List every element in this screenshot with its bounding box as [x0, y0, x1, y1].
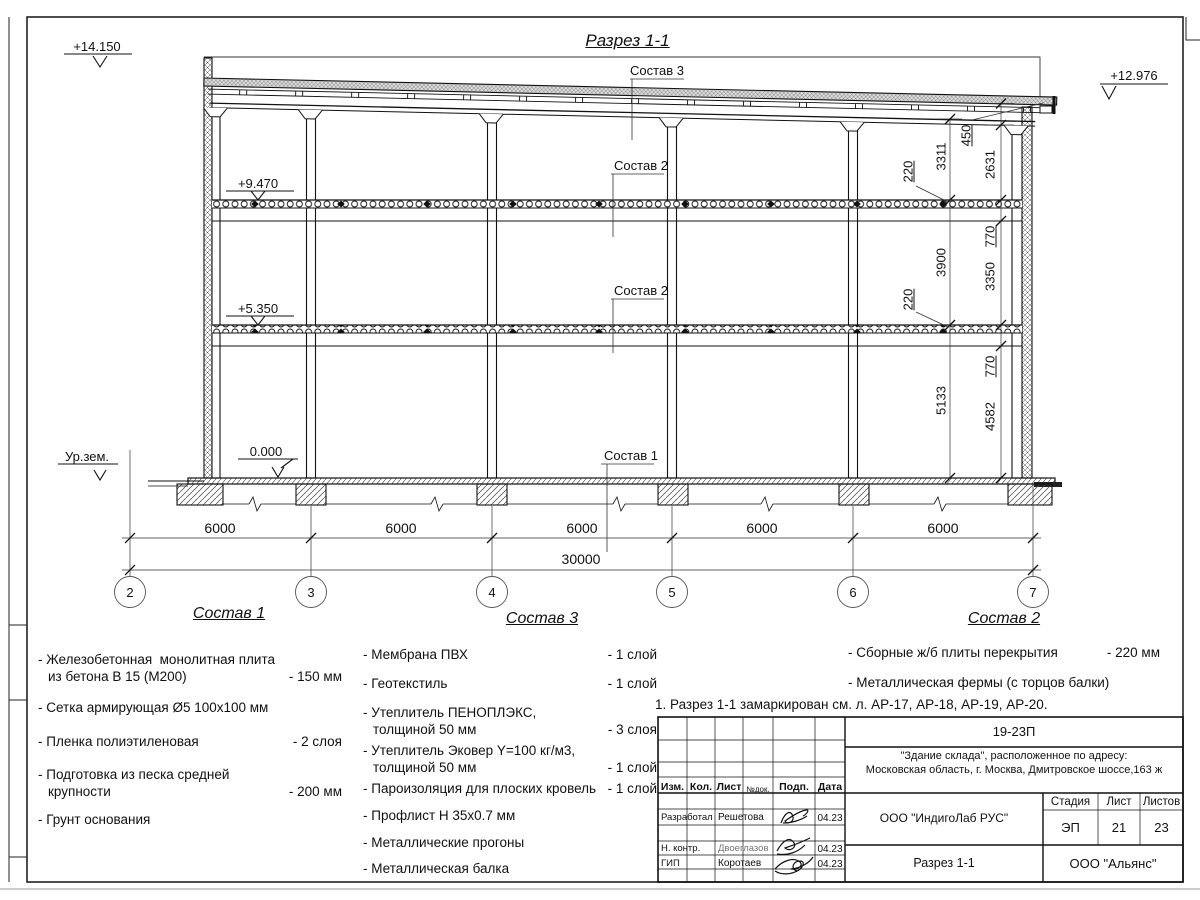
- callout-sostav1-slab: Состав 1: [600, 448, 662, 463]
- dim-220-lower: 220: [901, 270, 916, 330]
- titleblock-header-podp: Подп.: [773, 781, 815, 794]
- titleblock-object-line1: "Здание склада", расположенное по адресу…: [845, 750, 1183, 763]
- legend2-value: - 220 мм: [1095, 645, 1160, 662]
- titleblock-header-kol: Кол.: [687, 781, 715, 794]
- legend1-value: - 2 слоя: [280, 734, 342, 751]
- grid-bubbles: [115, 577, 1049, 608]
- dim-4582: 4582: [983, 387, 998, 447]
- signature-korotaev: [775, 857, 813, 874]
- callout-sostav3-roof: Состав 3: [626, 63, 688, 78]
- legend3-item: - Профлист Н 35х0.7 мм: [363, 808, 603, 825]
- titleblock-date: 04.23: [815, 843, 845, 856]
- legend1-heading: Состав 1: [184, 605, 274, 623]
- titleblock-role: Н. контр.: [661, 843, 716, 855]
- dim-bay-4: 6000: [727, 521, 797, 536]
- elevation-parapet-left: +14.150: [62, 39, 132, 54]
- grid-bubble-2: 2: [115, 585, 145, 600]
- left-wall: [204, 58, 212, 478]
- dim-2631: 2631: [983, 135, 998, 195]
- titleblock-role: Разработал: [661, 812, 716, 824]
- dim-bay-3: 6000: [547, 521, 617, 536]
- dim-450: 450: [959, 106, 974, 166]
- titleblock-sheet-value: 21: [1098, 820, 1140, 835]
- dim-3900: 3900: [934, 233, 949, 293]
- legend3-value: - 1 слой: [597, 676, 657, 693]
- grid-bubble-5: 5: [657, 585, 687, 600]
- signatures: [775, 810, 813, 874]
- dim-total: 30000: [541, 552, 621, 567]
- signature-dvoeglazov: [777, 838, 810, 855]
- dim-3350: 3350: [983, 247, 998, 307]
- dim-bay-2: 6000: [366, 521, 436, 536]
- legend2-item: - Сборные ж/б плиты перекрытия: [848, 645, 1088, 662]
- grid-bubble-7: 7: [1018, 585, 1048, 600]
- titleblock-header-list: Лист: [715, 781, 743, 794]
- legend2-item: - Металлическая фермы (с торцов балки): [848, 675, 1128, 692]
- dim-220-upper: 220: [901, 142, 916, 202]
- titleblock-drawing-name: Разрез 1-1: [845, 857, 1043, 870]
- grid-bubble-6: 6: [838, 585, 868, 600]
- legend3-heading: Состав 3: [497, 610, 587, 628]
- legend1-value: - 200 мм: [280, 784, 342, 801]
- legend3-item: - Металлическая балка: [363, 861, 603, 878]
- legend1-item-line2: крупности: [48, 784, 298, 801]
- legend3-item: - Мембрана ПВХ: [363, 647, 603, 664]
- titleblock-stage-header: Стадия: [1043, 796, 1098, 809]
- legend3-value: - 3 слоя: [597, 722, 657, 739]
- titleblock-header-ndoc: №док.: [743, 783, 773, 796]
- titleblock-name: Коротаев: [718, 858, 773, 870]
- titleblock-name: Двоеглазов: [718, 843, 773, 855]
- titleblock-sheets-header: Листов: [1140, 796, 1183, 809]
- legend3-item: - Утеплитель Эковер Y=100 кг/м3,: [363, 743, 603, 760]
- legend3-value: - 1 слой: [597, 781, 657, 798]
- callout-sostav2-upper: Состав 2: [610, 158, 672, 173]
- legend3-item-line2: толщиной 50 мм: [373, 722, 613, 739]
- dim-5133: 5133: [934, 371, 949, 431]
- ground-break-line: [223, 497, 1008, 511]
- roof-structure: [203, 78, 1057, 136]
- legend1-item-line2: из бетона В 15 (М200): [48, 669, 298, 686]
- ground-slab: [148, 478, 1062, 487]
- titleblock-sheets-value: 23: [1140, 820, 1183, 835]
- elevation-floor-upper: +9.470: [226, 176, 290, 191]
- legend3-item: - Утеплитель ПЕНОПЛЭКС,: [363, 705, 603, 722]
- legend3-item: - Пароизоляция для плоских кровель: [363, 781, 603, 798]
- titleblock-sheet-header: Лист: [1098, 796, 1140, 809]
- titleblock-project-code: 19-23П: [845, 724, 1183, 739]
- right-wall: [1022, 107, 1032, 478]
- signature-reshetova: [781, 810, 808, 823]
- titleblock-object-line2: Московская область, г. Москва, Дмитровск…: [845, 764, 1183, 777]
- elevation-ground-floor: 0.000: [238, 444, 294, 459]
- titleblock-role: ГИП: [661, 858, 716, 870]
- titleblock-date: 04.23: [815, 812, 845, 825]
- legend1-item: - Железобетонная монолитная плита: [38, 652, 288, 669]
- elevation-roof-right: +12.976: [1098, 68, 1170, 83]
- ground-level-label: Ур.зем.: [56, 449, 118, 464]
- drawing-note: 1. Разрез 1-1 замаркирован см. л. АР-17,…: [655, 697, 1095, 714]
- titleblock-stage-value: ЭП: [1043, 820, 1098, 835]
- legend1-item: - Сетка армирующая Ø5 100х100 мм: [38, 700, 318, 717]
- titleblock-date: 04.23: [815, 858, 845, 871]
- legend3-value: - 1 слой: [597, 760, 657, 777]
- legend3-item: - Геотекстиль: [363, 676, 603, 693]
- legend3-item: - Металлические прогоны: [363, 835, 603, 852]
- titleblock-name: Решетова: [718, 812, 773, 824]
- dim-bay-1: 6000: [185, 521, 255, 536]
- legend1-item: - Грунт основания: [38, 812, 288, 829]
- legend1-value: - 150 мм: [280, 669, 342, 686]
- titleblock-header-data: Дата: [815, 781, 845, 794]
- legend1-item: - Подготовка из песка средней: [38, 767, 288, 784]
- elevation-floor-lower: +5.350: [226, 301, 290, 316]
- floor-slab-upper: [212, 200, 1022, 221]
- grid-bubble-4: 4: [477, 585, 507, 600]
- legend2-heading: Состав 2: [959, 610, 1049, 628]
- titleblock-header-izm: Изм.: [658, 781, 687, 794]
- vertical-dim-chains: [938, 103, 1014, 478]
- titleblock-designer-company: ООО "ИндигоЛаб РУС": [845, 812, 1043, 825]
- dim-bay-5: 6000: [908, 521, 978, 536]
- dim-3311: 3311: [934, 127, 949, 187]
- legend3-item-line2: толщиной 50 мм: [373, 760, 613, 777]
- elevation-marks: [58, 54, 1168, 480]
- legend3-value: - 1 слой: [597, 647, 657, 664]
- titleblock-client-company: ООО "Альянс": [1043, 856, 1183, 871]
- drawing-title: Разрез 1-1: [570, 31, 685, 50]
- callout-sostav2-lower: Состав 2: [610, 283, 672, 298]
- drawing-sheet: Разрез 1-1 +14.150 +12.976 +9.470 +5.350…: [0, 0, 1200, 900]
- grid-bubble-3: 3: [296, 585, 326, 600]
- legend1-item: - Пленка полиэтиленовая: [38, 734, 288, 751]
